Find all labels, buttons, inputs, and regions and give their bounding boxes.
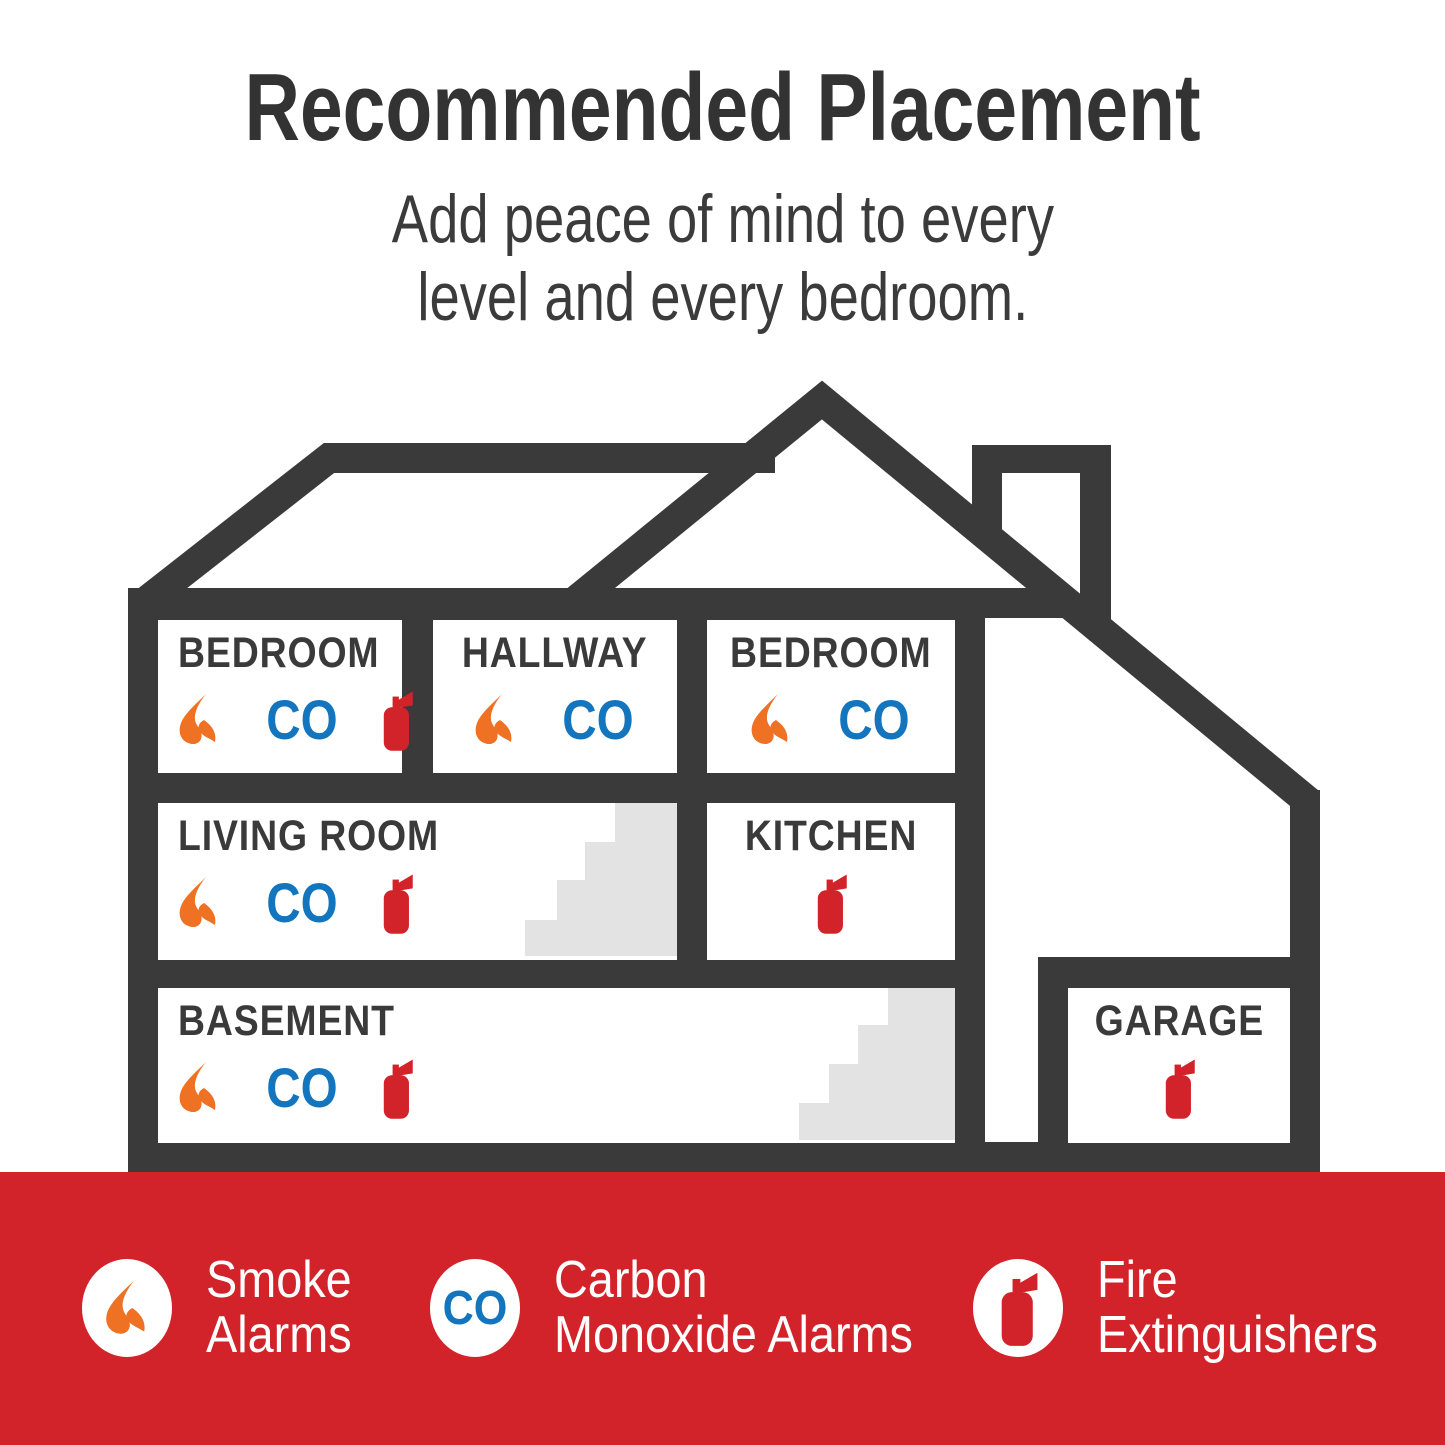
co-alarm-badge: CO xyxy=(266,872,337,934)
room-label-text: HALLWAY xyxy=(462,630,648,676)
right-wall xyxy=(1290,790,1320,1172)
room-hallway: HALLWAYCO xyxy=(433,620,677,773)
room-label-text: GARAGE xyxy=(1094,998,1263,1044)
room-living-room: LIVING ROOMCO xyxy=(158,803,522,960)
co-alarm-badge: CO xyxy=(838,689,909,751)
room-basement: BASEMENTCO xyxy=(158,988,588,1143)
legend-label-line-2: Monoxide Alarms xyxy=(554,1308,913,1363)
room-label: HALLWAY xyxy=(448,630,661,676)
room-label: BASEMENT xyxy=(178,998,427,1044)
room-alarm-icons: CO xyxy=(174,871,414,935)
legend-label-smoke: SmokeAlarms xyxy=(206,1253,368,1363)
legend-label-co: CarbonMonoxide Alarms xyxy=(554,1253,953,1363)
room-label-text: KITCHEN xyxy=(745,813,917,859)
room-label-text: BASEMENT xyxy=(178,998,395,1044)
legend-item-smoke: SmokeAlarms xyxy=(82,1252,368,1364)
room-bedroom-1: BEDROOMCO xyxy=(158,620,402,773)
room-garage: GARAGE xyxy=(1068,988,1290,1143)
fire-extinguisher-icon xyxy=(814,873,848,934)
smoke-alarm-icon xyxy=(470,693,520,748)
room-label-text: BEDROOM xyxy=(730,630,931,676)
room-alarm-icons: CO xyxy=(174,688,414,752)
legend-item-co: COCarbonMonoxide Alarms xyxy=(430,1252,953,1364)
legend-label-line-2: Alarms xyxy=(206,1308,352,1363)
smoke-alarm-icon xyxy=(174,1061,224,1116)
co-alarm-badge: CO xyxy=(443,1281,508,1336)
room-alarm-icons xyxy=(1162,1056,1196,1120)
room-alarm-icons: CO xyxy=(174,1056,414,1120)
base-band xyxy=(985,1142,1038,1172)
room-alarm-icons: CO xyxy=(470,688,640,752)
fire-extinguisher-icon xyxy=(380,1058,414,1119)
room-alarm-icons: CO xyxy=(746,688,916,752)
fire-extinguisher-icon xyxy=(997,1271,1039,1346)
room-label: KITCHEN xyxy=(732,813,930,859)
legend-item-extinguisher: FireExtinguishers xyxy=(973,1252,1409,1364)
smoke-alarm-icon xyxy=(746,693,796,748)
legend-label-line-1: Carbon xyxy=(554,1253,708,1308)
fire-extinguisher-icon xyxy=(380,690,414,751)
room-label: BEDROOM xyxy=(715,630,947,676)
room-alarm-icons xyxy=(814,871,848,935)
smoke-alarm-icon xyxy=(174,876,224,931)
room-label: LIVING ROOM xyxy=(178,813,478,859)
room-kitchen: KITCHEN xyxy=(707,803,955,960)
legend-label-extinguisher: FireExtinguishers xyxy=(1097,1253,1409,1363)
co-alarm-badge: CO xyxy=(562,689,633,751)
co-alarm-badge: CO xyxy=(266,1057,337,1119)
room-bedroom-2: BEDROOMCO xyxy=(707,620,955,773)
co-alarm-badge: CO xyxy=(266,689,337,751)
room-label-text: LIVING ROOM xyxy=(178,813,439,859)
smoke-alarm-icon xyxy=(174,693,224,748)
room-label-text: BEDROOM xyxy=(178,630,379,676)
room-label: BEDROOM xyxy=(178,630,410,676)
fire-extinguisher-icon xyxy=(380,873,414,934)
legend-circle-co: CO xyxy=(430,1259,520,1357)
legend-label-line-1: Smoke xyxy=(206,1253,352,1308)
fire-extinguisher-icon xyxy=(1162,1058,1196,1119)
legend-footer: SmokeAlarmsCOCarbonMonoxide AlarmsFireEx… xyxy=(0,1172,1445,1445)
room-label: GARAGE xyxy=(1082,998,1277,1044)
smoke-alarm-icon xyxy=(100,1279,154,1338)
legend-label-line-2: Extinguishers xyxy=(1097,1308,1378,1363)
legend-circle-extinguisher xyxy=(973,1259,1063,1357)
legend-label-line-1: Fire xyxy=(1097,1253,1178,1308)
legend-circle-smoke xyxy=(82,1259,172,1357)
